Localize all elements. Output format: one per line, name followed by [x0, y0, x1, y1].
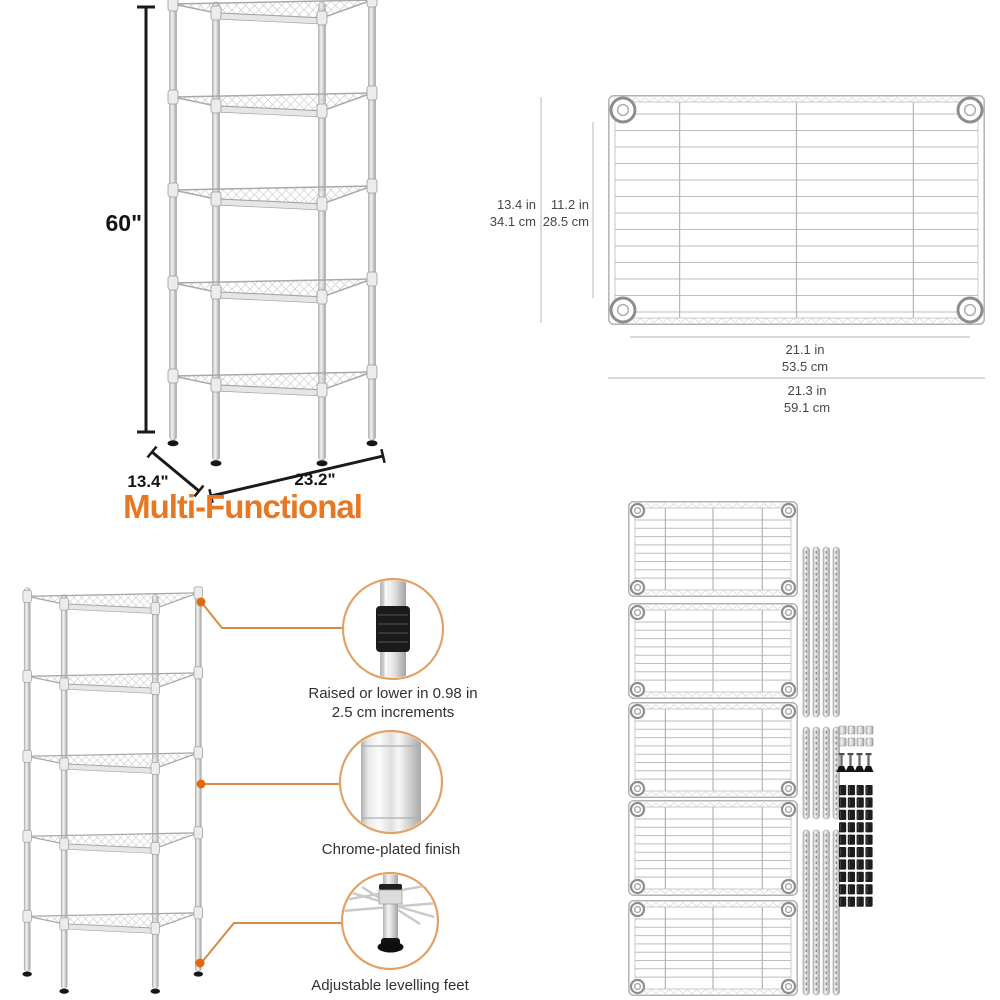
- panel-outer-width-label: 21.3 in 59.1 cm: [737, 382, 877, 416]
- width-dimension-label: 23.2": [270, 470, 360, 490]
- feature-line: Chrome-plated finish: [276, 840, 506, 859]
- feature-line: Raised or lower in 0.98 in: [278, 684, 508, 703]
- callout-chrome-finish: [340, 730, 442, 834]
- feature-line: Adjustable levelling feet: [275, 976, 505, 995]
- height-dimension-label: 60": [92, 210, 142, 237]
- multi-functional-caption: Multi-Functional: [60, 488, 425, 526]
- product-infographic: { "colors": { "accent_orange": "#e87722"…: [0, 0, 1000, 1000]
- inner-depth-cm: 28.5 cm: [541, 213, 589, 230]
- panel-inner-depth-label: 11.2 in 28.5 cm: [541, 196, 589, 230]
- callout-leveling-foot: [342, 873, 438, 969]
- callout-pole-clip: [343, 578, 443, 680]
- feature-line: 2.5 cm increments: [278, 703, 508, 722]
- shelf-unit-front-illustration: [168, 0, 378, 466]
- inner-width-cm: 53.5 cm: [735, 358, 875, 375]
- outer-depth-cm: 34.1 cm: [460, 213, 536, 230]
- panel-inner-width-label: 21.1 in 53.5 cm: [735, 341, 875, 375]
- callout-connectors: [202, 603, 345, 962]
- shelf-unit-callout-illustration: [22, 587, 203, 994]
- feature-caption-leveling-feet: Adjustable levelling feet: [275, 976, 505, 995]
- inner-depth-inches: 11.2 in: [541, 196, 589, 213]
- panel-outer-depth-label: 13.4 in 34.1 cm: [460, 196, 536, 230]
- outer-depth-inches: 13.4 in: [460, 196, 536, 213]
- outer-width-inches: 21.3 in: [737, 382, 877, 399]
- shelf-panel-top-view: [609, 96, 984, 324]
- inner-width-inches: 21.1 in: [735, 341, 875, 358]
- outer-width-cm: 59.1 cm: [737, 399, 877, 416]
- feature-caption-adjustable-height: Raised or lower in 0.98 in 2.5 cm increm…: [278, 684, 508, 722]
- parts-kit-illustration: [629, 502, 874, 995]
- feature-caption-chrome-finish: Chrome-plated finish: [276, 840, 506, 859]
